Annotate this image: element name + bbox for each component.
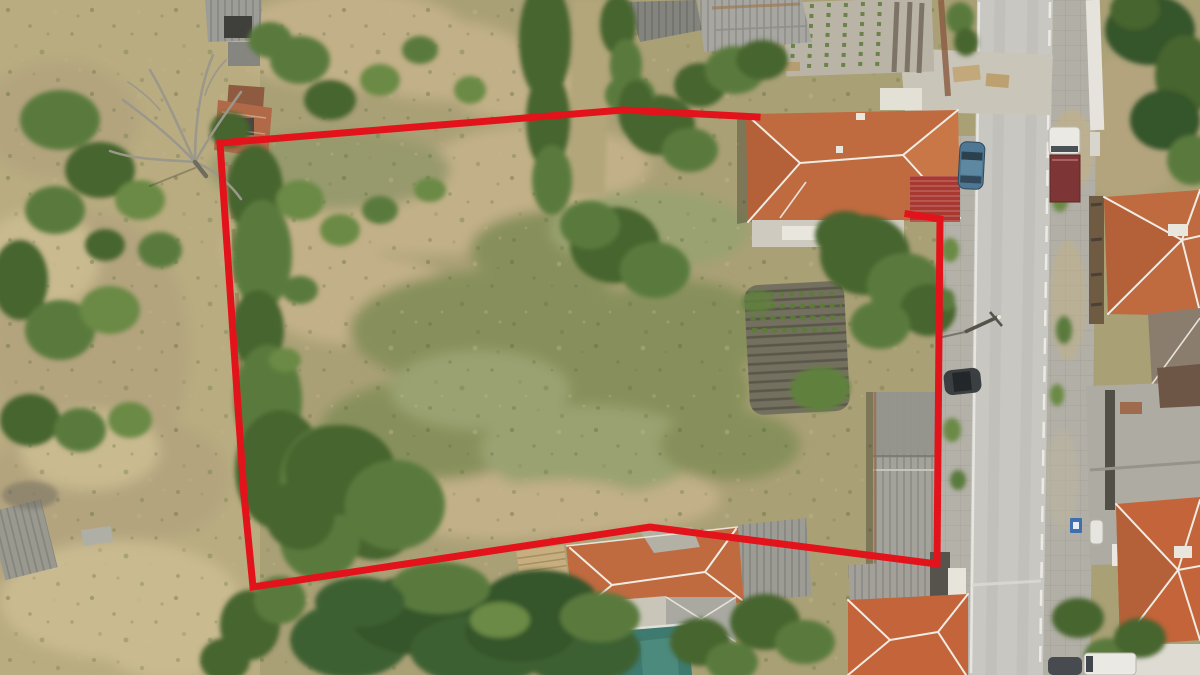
southeast-house xyxy=(848,552,968,675)
southeast-house-roof xyxy=(848,594,968,675)
outbuilding-long xyxy=(866,392,936,564)
aerial-photo-canvas xyxy=(0,0,1200,675)
tilled-garden xyxy=(741,280,852,415)
box-truck xyxy=(1049,127,1080,202)
dark-brown-roof xyxy=(1157,364,1200,408)
rooftop-ac xyxy=(1168,224,1188,236)
white-wall xyxy=(948,568,966,598)
blue-car xyxy=(958,141,985,189)
aerial-photo xyxy=(0,0,1200,675)
brick-debris xyxy=(1120,402,1142,414)
satellite-dish xyxy=(836,146,843,153)
white-van-bottom xyxy=(1084,653,1136,675)
rooftop-ac xyxy=(1174,546,1192,558)
disabled-parking-glyph xyxy=(1073,522,1079,529)
parked-dark-car xyxy=(943,367,982,396)
pallet xyxy=(985,73,1009,88)
dark-car-bottom xyxy=(1048,657,1082,675)
white-small-car xyxy=(1090,520,1103,544)
gate-pillar xyxy=(1090,132,1100,156)
pallet xyxy=(952,65,980,83)
chimney xyxy=(856,113,865,120)
white-canopy xyxy=(880,88,922,110)
shadow-gap xyxy=(1105,390,1115,510)
